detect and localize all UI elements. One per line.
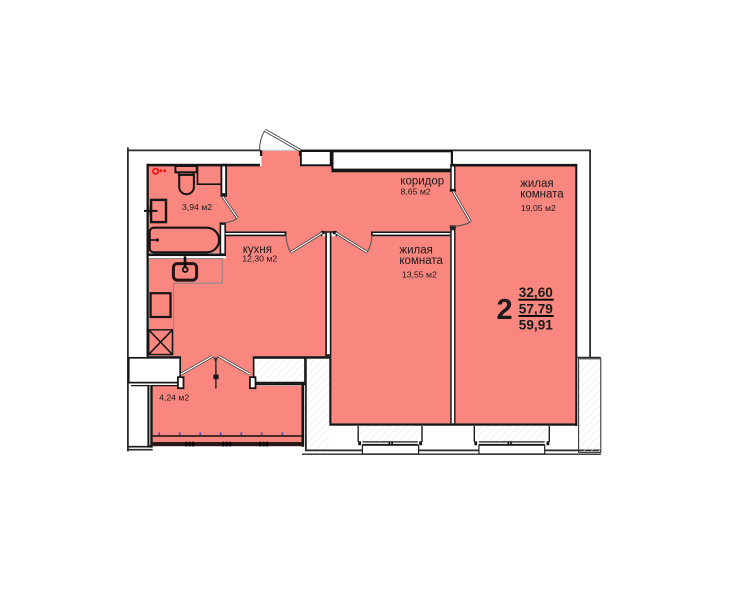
- svg-text:59,91: 59,91: [519, 317, 553, 332]
- svg-text:комната: комната: [520, 189, 564, 201]
- svg-text:2: 2: [497, 294, 513, 326]
- svg-text:32,60: 32,60: [519, 285, 553, 300]
- svg-text:4,24 м2: 4,24 м2: [159, 393, 189, 403]
- svg-text:3,94 м2: 3,94 м2: [182, 202, 212, 212]
- svg-text:комната: комната: [399, 255, 443, 267]
- svg-text:8,65 м2: 8,65 м2: [401, 186, 431, 196]
- svg-text:57,79: 57,79: [519, 302, 553, 317]
- svg-text:13,55 м2: 13,55 м2: [402, 270, 437, 280]
- svg-text:12,30 м2: 12,30 м2: [242, 254, 277, 264]
- svg-text:19,05 м2: 19,05 м2: [521, 203, 556, 213]
